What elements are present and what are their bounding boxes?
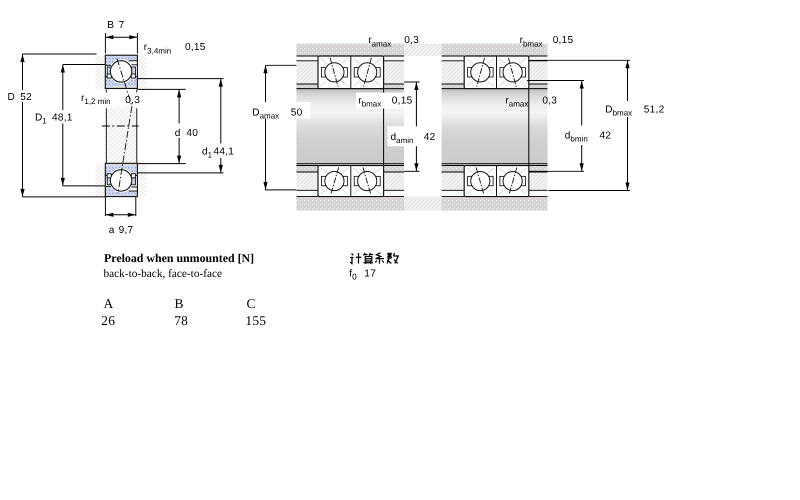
svg-text:0,15: 0,15 — [185, 42, 206, 53]
svg-text:44,1: 44,1 — [214, 146, 235, 157]
svg-text:7: 7 — [119, 20, 125, 31]
svg-text:Preload when unmounted [N]: Preload when unmounted [N] — [104, 251, 254, 265]
svg-text:51,2: 51,2 — [644, 104, 665, 115]
svg-text:50: 50 — [291, 107, 303, 118]
svg-text:52: 52 — [20, 92, 32, 103]
svg-text:48,1: 48,1 — [52, 112, 73, 123]
svg-text:78: 78 — [174, 313, 188, 328]
svg-text:0,15: 0,15 — [553, 35, 574, 46]
svg-text:40: 40 — [186, 128, 198, 139]
svg-text:0,3: 0,3 — [125, 95, 140, 106]
svg-text:B: B — [175, 296, 184, 311]
svg-text:C: C — [247, 296, 256, 311]
svg-text:0,3: 0,3 — [542, 95, 557, 106]
svg-text:back-to-back, face-to-face: back-to-back, face-to-face — [104, 268, 223, 280]
svg-text:42: 42 — [600, 130, 612, 141]
svg-text:D: D — [8, 92, 16, 103]
svg-text:155: 155 — [245, 313, 266, 328]
svg-text:9,7: 9,7 — [119, 225, 134, 236]
svg-text:d: d — [175, 128, 181, 139]
svg-text:B: B — [107, 20, 114, 31]
svg-text:0,3: 0,3 — [404, 35, 419, 46]
svg-text:17: 17 — [364, 269, 376, 280]
svg-text:0,15: 0,15 — [392, 95, 413, 106]
svg-text:a: a — [109, 225, 115, 236]
svg-text:42: 42 — [424, 132, 436, 143]
svg-text:A: A — [104, 296, 114, 311]
svg-text:26: 26 — [101, 313, 115, 328]
